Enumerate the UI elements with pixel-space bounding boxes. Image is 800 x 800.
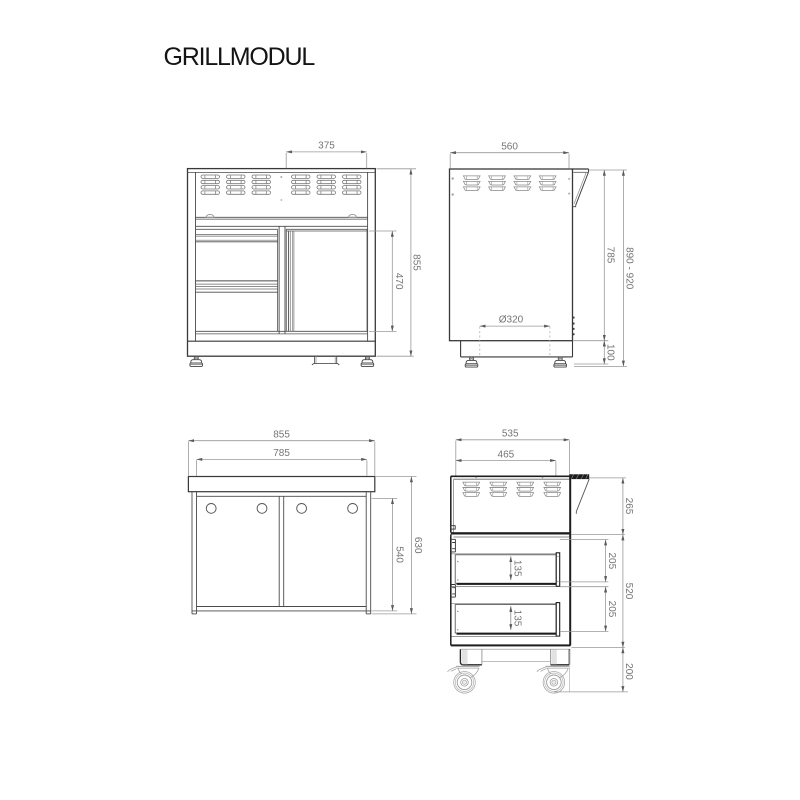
svg-text:100: 100 bbox=[605, 344, 616, 361]
svg-text:GRILLMODUL: GRILLMODUL bbox=[164, 43, 316, 71]
svg-text:855: 855 bbox=[411, 254, 422, 271]
svg-text:560: 560 bbox=[501, 142, 518, 153]
svg-text:785: 785 bbox=[605, 247, 616, 264]
svg-text:890 - 920: 890 - 920 bbox=[624, 247, 635, 290]
svg-text:785: 785 bbox=[273, 448, 290, 459]
svg-text:135: 135 bbox=[512, 560, 523, 577]
svg-text:200: 200 bbox=[623, 663, 634, 680]
svg-text:135: 135 bbox=[512, 610, 523, 627]
svg-text:520: 520 bbox=[623, 583, 634, 600]
svg-text:205: 205 bbox=[606, 601, 617, 618]
svg-text:265: 265 bbox=[623, 498, 634, 515]
svg-text:630: 630 bbox=[412, 537, 423, 554]
svg-text:540: 540 bbox=[393, 546, 404, 563]
svg-text:375: 375 bbox=[318, 141, 335, 152]
svg-text:465: 465 bbox=[498, 449, 515, 460]
svg-text:470: 470 bbox=[393, 273, 404, 290]
svg-text:205: 205 bbox=[606, 552, 617, 569]
svg-text:855: 855 bbox=[273, 430, 290, 441]
svg-text:Ø320: Ø320 bbox=[499, 315, 524, 326]
svg-text:535: 535 bbox=[502, 429, 519, 440]
